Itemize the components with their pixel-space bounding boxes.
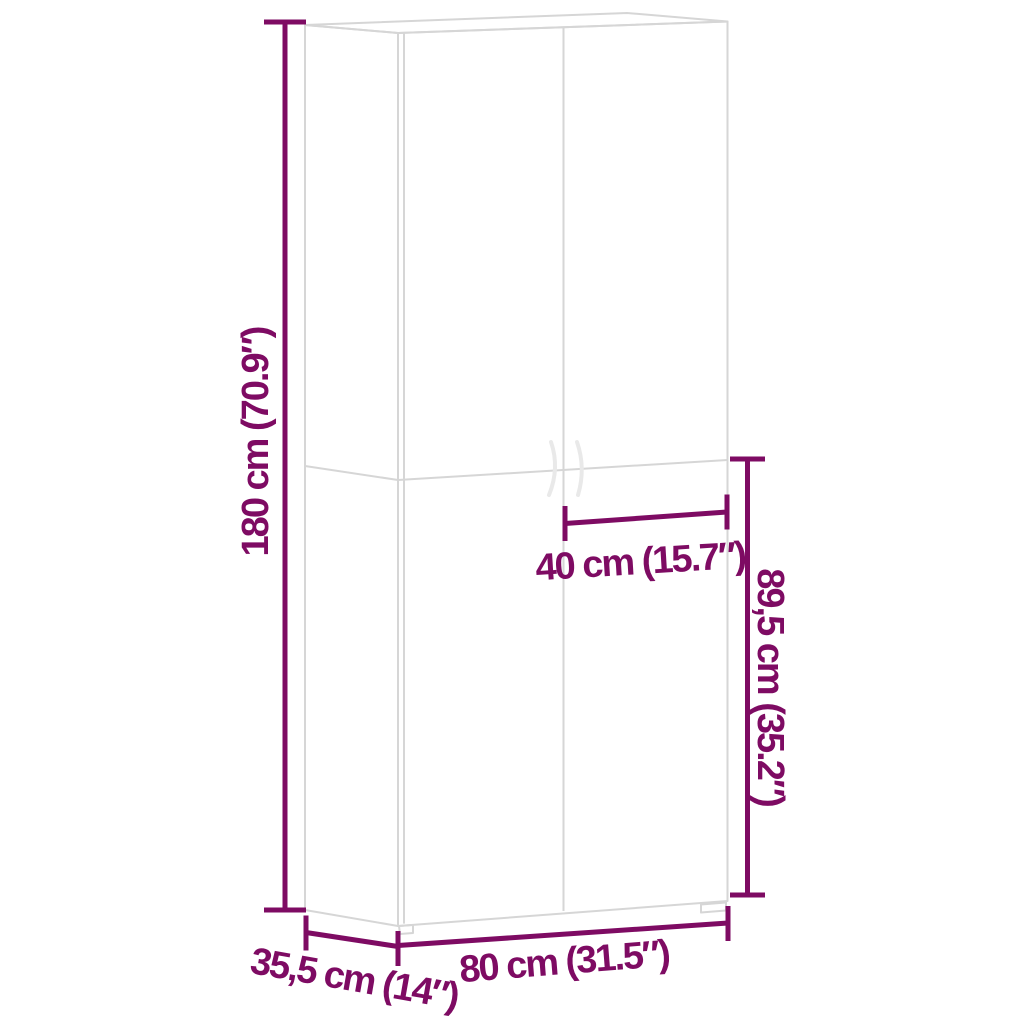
dimension-door-width: 40 cm (15.7″) (534, 495, 746, 590)
dimension-diagram-page: 180 cm (70.9″) 40 cm (15.7″) 89,5 cm (35… (0, 0, 1024, 1024)
dimension-height: 180 cm (70.9″) (235, 22, 306, 910)
cabinet-drawing (305, 13, 728, 934)
cabinet-foot-left (399, 925, 413, 934)
dimension-lower-height: 89,5 cm (35.2″) (730, 459, 791, 895)
dimension-door-width-label: 40 cm (15.7″) (534, 535, 746, 590)
dimension-height-label: 180 cm (70.9″) (235, 327, 277, 556)
dimension-depth-label: 35,5 cm (14″) (247, 940, 461, 1018)
furniture-dimension-diagram: 180 cm (70.9″) 40 cm (15.7″) 89,5 cm (35… (0, 0, 1024, 1024)
dimension-lower-height-label: 89,5 cm (35.2″) (749, 568, 791, 806)
cabinet-side-face (305, 25, 398, 926)
door-handle-left-icon (549, 442, 555, 495)
cabinet-foot-right (701, 903, 726, 913)
dimension-depth: 35,5 cm (14″) (247, 916, 461, 1019)
cabinet-mid-line-side (305, 466, 398, 480)
dimension-door-width-line (565, 512, 727, 524)
dimension-depth-line (306, 933, 398, 947)
